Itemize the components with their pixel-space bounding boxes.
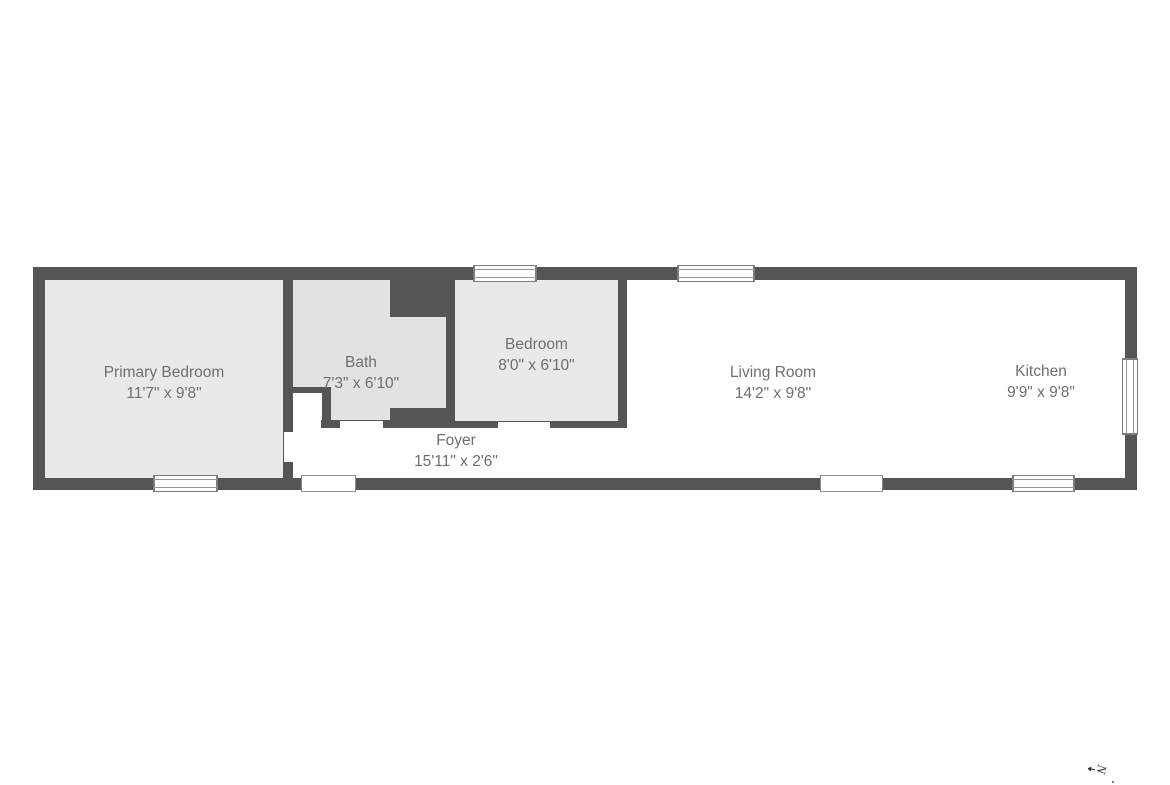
window-top-bedroom: [473, 265, 537, 282]
window-bottom-primary-bedroom: [153, 475, 218, 492]
room-dimensions: 7'3" x 6'10": [288, 373, 434, 394]
window-bottom-kitchen: [1012, 475, 1075, 492]
window-top-living-room: [677, 265, 755, 282]
room-name: Primary Bedroom: [45, 362, 283, 383]
floorplan-page: Primary Bedroom 11'7" x 9'8" Bath 7'3" x…: [0, 0, 1170, 785]
room-dimensions: 15'11" x 2'6": [306, 451, 606, 472]
primary-bedroom-door-opening: [284, 432, 293, 462]
compass-letter: N: [1093, 763, 1110, 776]
living-room-door: [820, 475, 883, 492]
room-dimensions: 8'0" x 6'10": [455, 355, 618, 376]
bedroom-door-opening: [498, 422, 550, 428]
label-living-room: Living Room 14'2" x 9'8": [627, 362, 919, 404]
label-primary-bedroom: Primary Bedroom 11'7" x 9'8": [45, 362, 283, 404]
floor-plan: Primary Bedroom 11'7" x 9'8" Bath 7'3" x…: [33, 267, 1137, 490]
closet-foyer-opening: [293, 420, 321, 428]
label-bedroom: Bedroom 8'0" x 6'10": [455, 334, 618, 376]
room-dimensions: 14'2" x 9'8": [627, 383, 919, 404]
closet-interior: [293, 393, 322, 420]
room-name: Kitchen: [941, 361, 1141, 382]
room-name: Living Room: [627, 362, 919, 383]
front-door: [301, 475, 356, 492]
room-dimensions: 11'7" x 9'8": [45, 383, 283, 404]
label-foyer: Foyer 15'11" x 2'6": [306, 430, 606, 472]
room-name: Foyer: [306, 430, 606, 451]
room-dimensions: 9'9" x 9'8": [941, 382, 1141, 403]
label-kitchen: Kitchen 9'9" x 9'8": [941, 361, 1141, 403]
room-name: Bedroom: [455, 334, 618, 355]
bath-door-opening: [340, 421, 383, 428]
label-bath: Bath 7'3" x 6'10": [288, 352, 434, 394]
room-name: Bath: [288, 352, 434, 373]
north-arrow-icon: N: [1088, 760, 1128, 785]
